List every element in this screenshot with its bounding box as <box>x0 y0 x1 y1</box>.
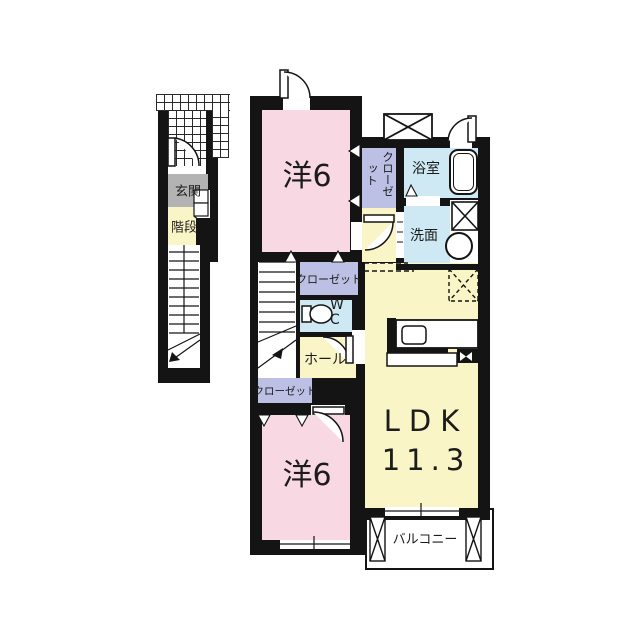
stairs-label: 階段 <box>171 217 197 236</box>
plan-linework <box>0 0 640 640</box>
wc-label-c: C <box>330 313 344 328</box>
washroom-label: 洗面 <box>410 225 438 245</box>
ldk-size-label: 11.3 <box>382 443 471 477</box>
wc-label: W C <box>330 298 344 328</box>
upper-hall-door-icon <box>364 215 394 250</box>
main-stairs-icon <box>258 262 296 368</box>
bedroom-bottom-door-icon <box>313 407 344 442</box>
bath-label: 浴室 <box>412 158 440 178</box>
washer-pan-icon <box>452 202 478 230</box>
hall-label: ホール <box>304 349 346 369</box>
kitchen-icon <box>387 318 478 366</box>
basin-icon <box>446 233 472 259</box>
closet-mid-label: クローゼット <box>296 271 362 287</box>
closet-vertical-label: クローゼット <box>363 150 396 198</box>
sliding-door-ticks <box>397 222 403 242</box>
bedroom-top-door-icon <box>280 70 310 98</box>
left-stairs-icon <box>168 245 200 362</box>
entrance-label: 玄関 <box>175 181 201 200</box>
bedroom-top-label: 洋6 <box>282 151 331 195</box>
ldk-name-label: LDK <box>384 404 469 438</box>
balcony-label: バルコニー <box>393 529 458 548</box>
bathtub-icon <box>450 150 477 194</box>
closet-lower-label: クローゼット <box>254 384 317 399</box>
floor-plan: 玄関 階段 洋6 クローゼット 浴室 洗面 クローゼット W C ホール クロー… <box>0 0 640 640</box>
window-box-icon <box>384 114 432 140</box>
entrance-door-icon <box>168 138 199 166</box>
refrigerator-space-icon <box>449 269 478 301</box>
bath-outer-door-icon <box>448 116 476 142</box>
toilet-icon <box>302 305 332 323</box>
wc-label-w: W <box>330 298 344 313</box>
bedroom-bottom-label: 洋6 <box>282 450 331 494</box>
open-boundary-dashes <box>364 263 414 271</box>
